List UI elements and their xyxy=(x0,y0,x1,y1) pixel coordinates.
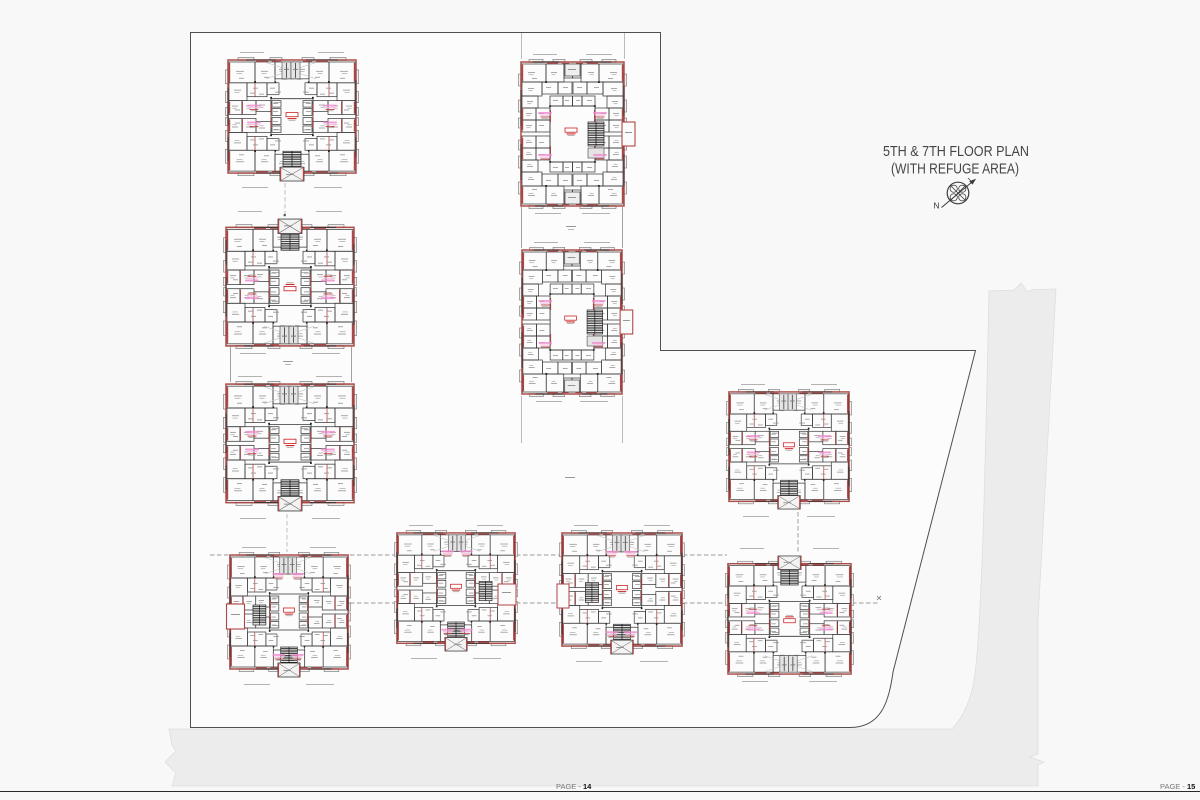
svg-text:PAGE - 15: PAGE - 15 xyxy=(1160,782,1195,791)
svg-text:(WITH REFUGE AREA): (WITH REFUGE AREA) xyxy=(891,162,1019,178)
svg-text:PAGE - 14: PAGE - 14 xyxy=(556,782,592,791)
svg-text:5TH & 7TH FLOOR PLAN: 5TH & 7TH FLOOR PLAN xyxy=(883,144,1029,160)
svg-text:N: N xyxy=(933,201,939,211)
